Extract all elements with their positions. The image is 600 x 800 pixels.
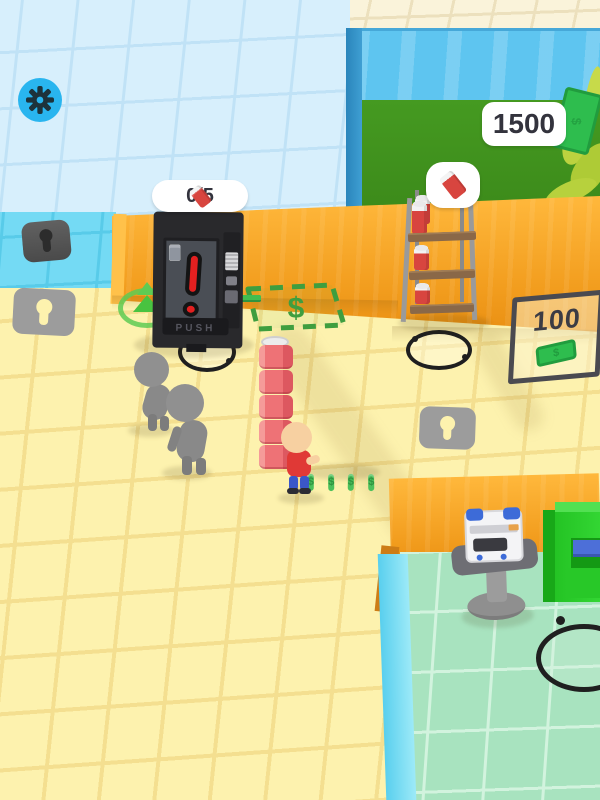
game-screen: $ 100 $ [0, 0, 600, 800]
register-station [446, 500, 546, 633]
padlock-keyhole-stem [443, 427, 451, 440]
pool-padlock [21, 224, 75, 294]
register-bumper [466, 508, 483, 521]
padlock-body [419, 406, 476, 450]
rack-shelf [408, 231, 476, 242]
register-bumper [503, 507, 520, 520]
register-machine [464, 509, 524, 563]
register-dot [501, 554, 507, 560]
spot-bolt [556, 616, 565, 625]
register-slot [473, 538, 507, 552]
wallet-badge: 1500 [482, 102, 566, 146]
player-shoe [287, 488, 299, 494]
pool-edge-wall [346, 28, 362, 214]
soda-can [412, 204, 427, 234]
soda-can [414, 248, 429, 270]
player-head [281, 422, 312, 453]
player-character [272, 418, 332, 504]
npc-leg [182, 456, 192, 475]
exclamation-dot [182, 301, 199, 317]
tower-can [259, 370, 293, 394]
spot-bolt [412, 336, 418, 342]
counter-drawer [573, 540, 600, 557]
padlock-body [21, 219, 72, 263]
locked-area-padlock [420, 411, 476, 413]
capacity-badge: 0/5 [152, 180, 248, 212]
rack-post [468, 194, 477, 320]
price-sign-value: 100 [515, 301, 598, 339]
bill-dollar: $ [553, 346, 560, 359]
padlock-keyhole-stem [42, 239, 51, 253]
can-rack-group [398, 162, 488, 332]
soda-can-icon [439, 170, 468, 200]
rack-post [401, 198, 412, 322]
tower-can [259, 345, 293, 369]
price-sign: 100 $ [508, 290, 600, 385]
npc-customer [152, 382, 228, 482]
money-stack-top: $ [348, 474, 354, 491]
vending-button [225, 290, 238, 303]
vending-machine: PUSH [152, 212, 243, 349]
vending-keypad [225, 252, 238, 270]
npc-leg [196, 458, 206, 475]
rack-shelf [410, 303, 474, 314]
drop-zone-dollar: $ [288, 292, 305, 325]
counter-top [555, 502, 600, 512]
vending-button [226, 276, 237, 285]
padlock-body [12, 287, 76, 336]
padlock-keyhole-stem [39, 311, 49, 325]
pedestal-stem [486, 568, 507, 603]
npc-body [175, 418, 210, 464]
vending-machine-group: PUSH 0/5 [150, 180, 250, 360]
bill-dollar: $ [569, 117, 584, 124]
spot-bolt [462, 354, 468, 360]
exclamation-bar [185, 251, 203, 296]
gear-icon [24, 84, 56, 116]
locked-area-padlock [14, 292, 76, 295]
soda-can [415, 286, 430, 304]
counter-ledge [566, 568, 600, 598]
rack-shelf [409, 269, 475, 280]
wallet-amount: 1500 [493, 108, 555, 140]
price-sign-bill: $ [535, 339, 576, 368]
player-shoe [299, 488, 311, 494]
settings-button[interactable] [18, 78, 62, 122]
money-stack-top: $ [368, 474, 374, 491]
rack-item-badge [426, 162, 480, 208]
register-chip [509, 524, 519, 530]
npc-head [166, 384, 204, 422]
alert-exclamation-icon [180, 251, 209, 332]
product-item [169, 245, 180, 261]
office-counter [540, 498, 600, 606]
tower-can [259, 395, 293, 419]
register-dot [477, 554, 483, 560]
